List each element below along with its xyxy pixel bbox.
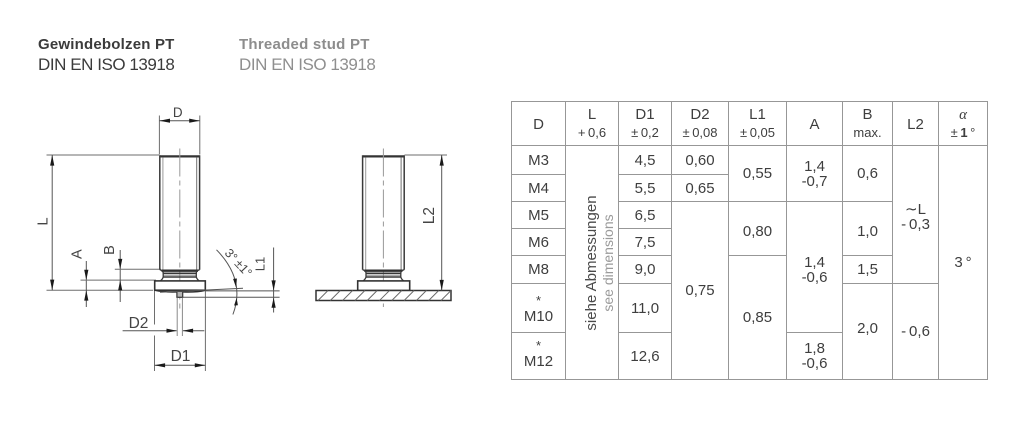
svg-text:D2: D2	[129, 315, 149, 332]
svg-text:B: B	[102, 245, 118, 255]
svg-text:D: D	[173, 105, 183, 120]
svg-text:D1: D1	[171, 348, 191, 365]
svg-text:A: A	[70, 249, 86, 259]
svg-text:L2: L2	[421, 207, 438, 224]
svg-text:L: L	[36, 217, 52, 225]
svg-text:L1: L1	[253, 257, 268, 271]
